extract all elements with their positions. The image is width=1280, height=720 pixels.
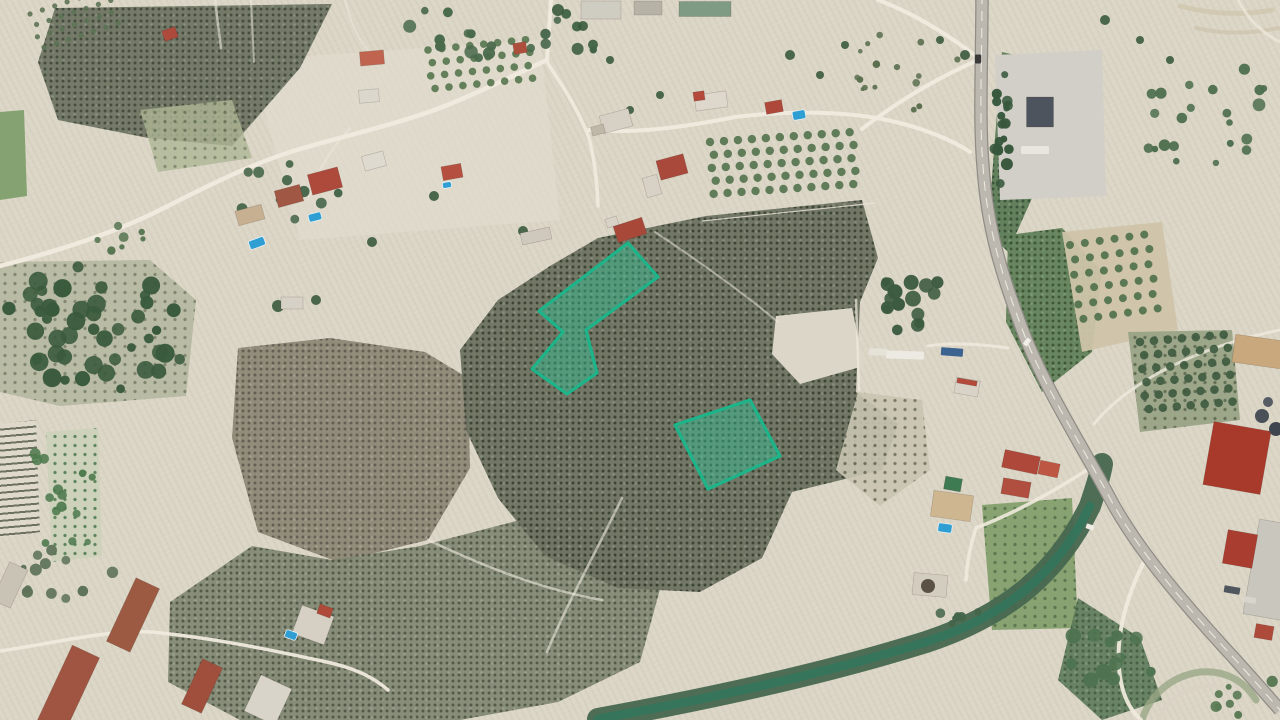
- orchard-tree-icon: [482, 66, 490, 74]
- orchard-tree-icon: [1196, 386, 1205, 395]
- orchard-tree-icon: [53, 40, 60, 47]
- tree-icon: [46, 588, 57, 599]
- tree-icon: [540, 29, 550, 39]
- road-west-main: [0, 60, 547, 266]
- orchard-tree-icon: [1184, 374, 1193, 383]
- tree-icon: [2, 302, 15, 315]
- orchard-tree-icon: [1135, 337, 1144, 346]
- orchard-tree-icon: [763, 160, 772, 169]
- orchard-tree-icon: [1118, 294, 1127, 303]
- trees-right-top: [1144, 64, 1268, 166]
- shed-top-edge-2: [634, 1, 662, 15]
- tree-icon: [73, 510, 81, 518]
- tree-icon: [119, 232, 129, 242]
- tree-icon: [1227, 140, 1234, 147]
- orchard-tree-icon: [735, 162, 744, 171]
- tree-icon: [87, 295, 106, 314]
- track-dark-field: [655, 232, 778, 322]
- orchard-tree-icon: [789, 132, 798, 141]
- tree-icon: [286, 160, 294, 168]
- tree-icon: [865, 41, 870, 46]
- tree-icon: [1159, 139, 1171, 151]
- orchard-tree-icon: [835, 181, 844, 190]
- orchard-tree-icon: [1156, 376, 1165, 385]
- orchard-tree-icon: [440, 70, 448, 78]
- truck-trailer-white-2: [869, 348, 887, 356]
- orchard-tree-icon: [707, 163, 716, 172]
- tree-icon: [892, 298, 905, 311]
- orchard-tree-icon: [1079, 314, 1088, 323]
- building-white-sw: [244, 675, 292, 720]
- track-top-3: [345, 0, 374, 58]
- orchard-tree-icon: [793, 144, 802, 153]
- orchard-tree-icon: [1145, 244, 1154, 253]
- tree-icon: [52, 507, 61, 516]
- tree-icon: [656, 91, 664, 99]
- tree-icon: [140, 296, 153, 309]
- tree-icon: [1253, 98, 1266, 111]
- tree-icon: [1088, 629, 1101, 642]
- tree-icon: [107, 246, 115, 254]
- orchard-tree-icon: [791, 158, 800, 167]
- tree-icon: [572, 43, 584, 55]
- tree-icon: [892, 325, 903, 336]
- house-east-red-c: [1001, 478, 1031, 499]
- tree-icon: [916, 103, 922, 109]
- tree-icon: [48, 330, 66, 348]
- pool-small-west: [442, 181, 452, 188]
- tree-icon: [1146, 667, 1156, 677]
- orchard-tree-icon: [1221, 357, 1230, 366]
- tree-icon: [1003, 105, 1009, 111]
- tree-icon: [1166, 56, 1174, 64]
- orchard-tree-icon: [427, 72, 435, 80]
- tree-icon: [1226, 119, 1233, 126]
- orchard-tree-icon: [765, 185, 774, 194]
- orchard-tree-icon: [1153, 349, 1162, 358]
- farm-west-white: [281, 297, 303, 309]
- orchard-tree-icon: [459, 81, 467, 89]
- orchard-tree-icon: [847, 154, 856, 163]
- orchard-tree-icon: [70, 9, 77, 16]
- tree-icon: [1241, 134, 1252, 145]
- road-junction-south: [547, 62, 598, 206]
- tree-icon: [73, 261, 84, 272]
- house-east-red-a: [1002, 449, 1041, 474]
- tree-icon: [554, 17, 561, 24]
- tree-icon: [911, 308, 924, 321]
- tree-icon: [75, 371, 90, 386]
- tree-icon: [98, 365, 115, 382]
- tree-icon: [61, 594, 70, 603]
- tree-icon: [32, 455, 43, 466]
- shed-center-2: [591, 124, 606, 136]
- tree-icon: [1100, 15, 1110, 25]
- tree-icon: [1136, 36, 1144, 44]
- track-vertical-east: [856, 300, 859, 390]
- house-tan-east: [930, 490, 973, 521]
- orchard-tree-icon: [90, 28, 97, 35]
- orchard-tree-icon: [107, 0, 114, 4]
- tree-icon: [41, 299, 58, 316]
- orchard-tree-icon: [1129, 262, 1138, 271]
- orchard-tree-icon: [452, 43, 460, 51]
- tree-icon: [53, 484, 63, 494]
- orchard-tree-icon: [1224, 384, 1233, 393]
- tree-icon: [443, 7, 453, 17]
- orchard-tree-icon: [1114, 264, 1123, 273]
- orchard-tree-icon: [1115, 249, 1124, 258]
- tree-icon: [89, 474, 96, 481]
- orchard-tree-icon: [851, 166, 860, 175]
- farm-shed-sw-1: [106, 578, 159, 652]
- orchard-tree-icon: [751, 147, 760, 156]
- warehouse-red-east: [1203, 421, 1271, 494]
- orchard-tree-icon: [510, 63, 518, 71]
- orchard-tree-icon: [751, 186, 760, 195]
- tree-icon: [917, 39, 924, 46]
- tree-icon: [1223, 109, 1232, 118]
- orchard-tree-icon: [47, 30, 54, 37]
- orchard-tree-icon: [765, 146, 774, 155]
- orchard-tree-icon: [849, 141, 858, 150]
- tree-icon: [95, 237, 101, 243]
- tree-icon: [95, 281, 107, 293]
- tree-icon: [131, 310, 145, 324]
- tree-icon: [429, 191, 439, 201]
- tree-icon: [904, 275, 919, 290]
- orchard-tree-icon: [33, 21, 40, 28]
- tree-icon: [992, 97, 1001, 106]
- orchard-tree-icon: [65, 36, 72, 43]
- tree-icon: [1002, 96, 1013, 107]
- orchard-tree-icon: [835, 141, 844, 150]
- orchard-tree-icon: [71, 21, 78, 28]
- tree-icon: [79, 470, 87, 478]
- yard-access: [928, 344, 1008, 348]
- highlighted-parcel-south[interactable]: [675, 400, 780, 489]
- orchard-tree-icon: [1080, 238, 1089, 247]
- tree-icon: [253, 167, 264, 178]
- orchard-tree-icon: [709, 189, 718, 198]
- orchard-tree-icon: [1210, 385, 1219, 394]
- field-fence-line: [702, 203, 876, 221]
- orchard-tree-icon: [27, 11, 34, 18]
- truck-blue: [941, 347, 964, 357]
- house-center-red-chip: [693, 91, 705, 101]
- orchard-tree-icon: [819, 156, 828, 165]
- tree-blobs-left: [2, 261, 185, 393]
- orchard-tree-icon: [845, 128, 854, 137]
- orchard-tree-icon: [39, 7, 46, 14]
- orchard-tree-icon: [1065, 240, 1074, 249]
- orchard-tree-icon: [1109, 310, 1118, 319]
- vans-compound: [1021, 146, 1049, 154]
- orchard-tree-icon: [1095, 236, 1104, 245]
- orchard-tree-icon: [1193, 359, 1202, 368]
- tree-icon: [1267, 676, 1278, 687]
- orchard-tree-icon: [1226, 370, 1235, 379]
- orchard-tree-icon: [473, 80, 481, 88]
- tree-icon: [1234, 711, 1242, 719]
- tree-icon: [1169, 141, 1179, 151]
- tree-icon: [1233, 691, 1242, 700]
- aerial-map[interactable]: [0, 0, 1280, 720]
- hedge-compound: [990, 71, 1014, 188]
- orchard-tree-icon: [76, 0, 83, 1]
- tree-icon: [27, 323, 44, 340]
- orchard-tree-icon: [723, 188, 732, 197]
- orchard-tree-icon: [1177, 334, 1186, 343]
- tree-icon: [1211, 701, 1222, 712]
- tree-icon: [96, 330, 113, 347]
- orchard-tree-icon: [1100, 251, 1109, 260]
- orchard-tree-icon: [1110, 234, 1119, 243]
- orchard-tree-icon: [428, 58, 436, 66]
- tree-icon: [1155, 88, 1166, 99]
- tree-icon: [316, 198, 327, 209]
- orchard-tree-icon: [1138, 306, 1147, 315]
- orchard-tree-icon: [793, 184, 802, 193]
- tree-icon: [954, 612, 962, 620]
- tree-icon: [527, 44, 535, 52]
- track-cross-2: [547, 498, 622, 652]
- ravine-trees: [1066, 628, 1156, 688]
- orchard-tree-icon: [454, 69, 462, 77]
- farmhouse-center: [656, 154, 688, 181]
- orchard-tree-icon: [96, 13, 103, 20]
- tree-icon: [857, 76, 864, 83]
- orchard-tree-icon: [115, 20, 122, 27]
- orchard-tree-icon: [1074, 300, 1083, 309]
- orchard-tree-icon: [767, 172, 776, 181]
- tree-icon: [421, 7, 429, 15]
- tree-icon: [42, 314, 52, 324]
- tree-icon: [1208, 85, 1218, 95]
- orchard-tree-icon: [1140, 351, 1149, 360]
- tree-icon: [1004, 144, 1014, 154]
- tree-icon: [858, 49, 863, 54]
- orchard-tree-icon: [64, 0, 71, 5]
- tree-icon: [992, 147, 1000, 155]
- building-white-top: [358, 89, 379, 104]
- hut-red-top-center: [513, 41, 528, 54]
- orchard-tree-icon: [1094, 312, 1103, 321]
- orchard-tree-icon: [496, 64, 504, 72]
- tree-icon: [116, 384, 125, 393]
- orchard-tree-icon: [1198, 373, 1207, 382]
- tree-icon: [152, 326, 161, 335]
- tree-icon: [881, 277, 890, 286]
- tree-icon: [109, 353, 121, 365]
- tree-icon: [112, 323, 125, 336]
- hut-red-top-left: [162, 26, 179, 41]
- tree-icon: [816, 71, 824, 79]
- farm-shed-sw-3: [181, 659, 222, 714]
- orchard-tree-icon: [753, 173, 762, 182]
- track-top-1: [215, 0, 221, 48]
- tree-icon: [152, 345, 168, 361]
- tree-icon: [127, 343, 136, 352]
- orchard-tree-icon: [431, 84, 439, 92]
- greenhouse-top: [679, 2, 731, 17]
- tree-icon: [936, 36, 944, 44]
- green-flecks-left: [30, 448, 96, 547]
- tree-icon: [960, 50, 970, 60]
- tree-icon: [282, 175, 292, 185]
- tree-icon: [905, 291, 921, 307]
- orchard-tree-icon: [84, 17, 91, 24]
- highlighted-parcel-north[interactable]: [532, 243, 658, 394]
- orchard-tree-icon: [1212, 371, 1221, 380]
- tree-icon: [1187, 104, 1195, 112]
- tree-icon: [873, 60, 881, 68]
- shed-green-roof: [944, 476, 963, 492]
- orchard-tree-icon: [1186, 401, 1195, 410]
- tree-icon: [30, 353, 49, 372]
- tree-icon: [931, 276, 943, 288]
- orchard-tree-icon: [1070, 270, 1079, 279]
- orchard-tree-icon: [733, 136, 742, 145]
- orchard-tree-icon: [803, 131, 812, 140]
- orchard-tree-icon: [468, 67, 476, 75]
- orchard-tree-icon: [779, 185, 788, 194]
- compound-dark-building: [1027, 97, 1054, 127]
- tree-icon: [334, 189, 343, 198]
- orchard-tree-icon: [1125, 232, 1134, 241]
- orchard-tree-icon: [1138, 364, 1147, 373]
- tree-icon: [1177, 113, 1188, 124]
- orchard-tree-icon: [739, 174, 748, 183]
- tree-icon: [107, 567, 118, 578]
- tree-icon: [1185, 81, 1193, 89]
- tree-icon: [311, 295, 321, 305]
- orchard-tree-icon: [721, 162, 730, 171]
- tree-icon: [140, 236, 145, 241]
- orchard-tree-icon: [1090, 283, 1099, 292]
- tree-icon: [588, 40, 598, 50]
- shed-top-edge-1: [581, 1, 621, 19]
- tree-icon: [912, 79, 920, 87]
- orchard-tree-icon: [779, 145, 788, 154]
- orchard-tree-icon: [1205, 331, 1214, 340]
- orchard-tree-icon: [777, 159, 786, 168]
- house-white-roof-nw: [361, 151, 386, 171]
- shrubs-interchange-triangle: [854, 32, 960, 113]
- orchard-tree-icon: [1085, 268, 1094, 277]
- tree-icon: [403, 20, 416, 33]
- tree-icon: [40, 558, 51, 569]
- tree-icon: [57, 349, 72, 364]
- tree-icon: [1083, 672, 1098, 687]
- tree-icon: [996, 179, 1005, 188]
- building-red-east-3: [1254, 624, 1274, 641]
- tree-icon: [30, 564, 42, 576]
- orchard-right-2: [1135, 330, 1237, 414]
- tree-icon: [1001, 158, 1013, 170]
- orchard-tree-icon: [833, 155, 842, 164]
- orchard-tree-icon: [1158, 403, 1167, 412]
- tree-icon: [954, 56, 960, 62]
- tree-icon: [1226, 684, 1232, 690]
- road-corner-top-right: [1238, 0, 1280, 42]
- tree-icon: [1096, 664, 1112, 680]
- tree-icon: [862, 85, 868, 91]
- orchard-tree-icon: [1168, 389, 1177, 398]
- orchard-tree-icon: [83, 5, 90, 12]
- tree-icon: [1213, 160, 1219, 166]
- orchard-tree-icon: [1181, 347, 1190, 356]
- tree-icon: [144, 334, 154, 344]
- tree-icon: [997, 112, 1005, 120]
- road-mid-east: [589, 113, 970, 152]
- orchard-tree-icon: [1149, 336, 1158, 345]
- orchard-tree-icon: [51, 3, 58, 10]
- tree-icon: [62, 556, 71, 565]
- tree-icon: [42, 539, 50, 547]
- tree-icon: [167, 303, 181, 317]
- orchard-tree-icon: [41, 44, 48, 51]
- tree-icon: [137, 361, 155, 379]
- building-red-east-2: [1222, 530, 1257, 569]
- orchard-tree-icon: [1163, 335, 1172, 344]
- pool-east: [937, 523, 952, 534]
- orchard-tree-icon: [1099, 266, 1108, 275]
- trees-roadside-west: [95, 222, 146, 255]
- track-top-2: [251, 0, 254, 62]
- orchard-tree-icon: [1134, 276, 1143, 285]
- tree-icon: [888, 284, 903, 299]
- tree-icon: [78, 586, 89, 597]
- terrace-arc-3: [1180, 6, 1272, 13]
- orchard-tree-icon: [1207, 358, 1216, 367]
- tree-icon: [936, 608, 946, 618]
- orchard-tree-icon: [1170, 375, 1179, 384]
- tree-icon: [174, 354, 185, 365]
- orchard-tree-icon: [1123, 308, 1132, 317]
- tree-icon: [119, 244, 124, 249]
- orchard-tree-icon: [1104, 296, 1113, 305]
- orchard-tree-icon: [723, 149, 732, 158]
- tree-icon: [872, 85, 877, 90]
- pool-nw-1: [308, 211, 323, 222]
- tree-icon: [53, 279, 71, 297]
- round-patio: [921, 579, 935, 593]
- orchard-tree-icon: [837, 167, 846, 176]
- orchard-tree-icon: [1133, 292, 1142, 301]
- tree-icon: [916, 73, 922, 79]
- tree-icon: [928, 287, 941, 300]
- tree-icon: [1215, 690, 1223, 698]
- tree-icon: [974, 608, 982, 616]
- building-red-top: [359, 50, 384, 66]
- orchard-tree-icon: [706, 138, 715, 147]
- tree-icon: [244, 168, 253, 177]
- orchard-tree-icon: [1075, 285, 1084, 294]
- orchard-tree-icon: [831, 129, 840, 138]
- orchard-tree-icon: [749, 161, 758, 170]
- building-left-edge: [0, 562, 28, 609]
- road-interchange-a: [878, 0, 976, 56]
- orchard-tree-icon: [1130, 247, 1139, 256]
- orchard-tree-icon: [821, 142, 830, 151]
- orchard-tree-icon: [725, 175, 734, 184]
- warehouse-tan-east: [1232, 334, 1280, 369]
- truck-dark-east: [1224, 585, 1241, 595]
- orchard-tree-icon: [1144, 260, 1153, 269]
- orchard-tree-icon: [1140, 391, 1149, 400]
- tree-icon: [474, 53, 483, 62]
